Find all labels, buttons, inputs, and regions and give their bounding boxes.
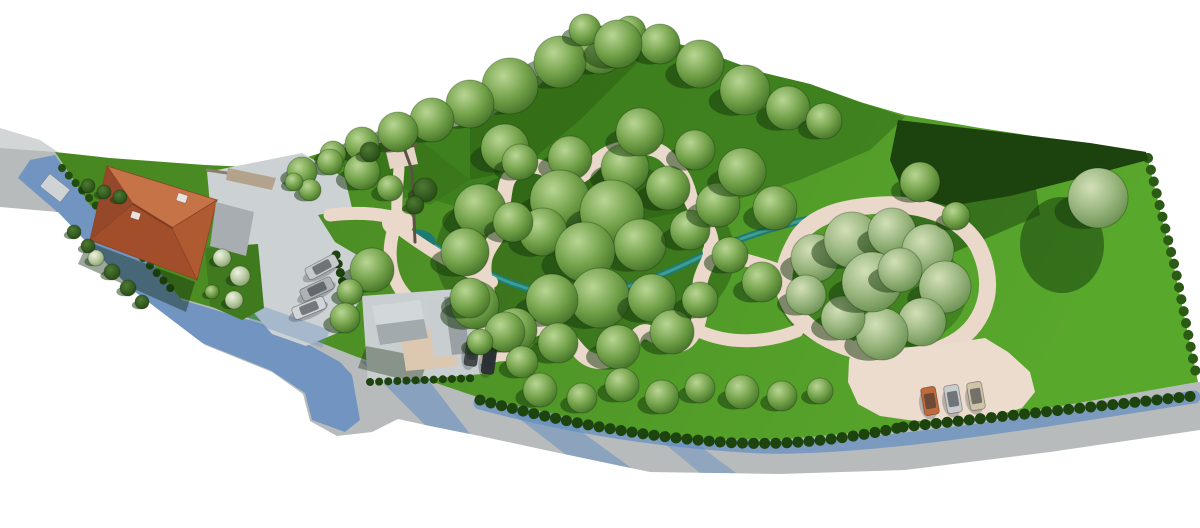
tree-crown bbox=[596, 325, 640, 369]
tree-crown bbox=[720, 65, 770, 115]
site-plan-svg bbox=[0, 0, 1200, 528]
tree-crown bbox=[567, 383, 597, 413]
tree-crown bbox=[317, 149, 343, 175]
site-plan-render bbox=[0, 0, 1200, 528]
tree-crown bbox=[378, 112, 418, 152]
tree-crown bbox=[523, 373, 557, 407]
tree-crown bbox=[406, 196, 424, 214]
tree-crown bbox=[120, 280, 136, 296]
tree-crown bbox=[97, 185, 111, 199]
tree-crown bbox=[230, 266, 250, 286]
tree-crown bbox=[725, 375, 759, 409]
tree bbox=[132, 295, 149, 309]
tree-crown bbox=[685, 373, 715, 403]
tree-crown bbox=[360, 142, 380, 162]
tree-crown bbox=[81, 179, 95, 193]
tree-crown bbox=[807, 378, 833, 404]
tree-crown bbox=[502, 144, 538, 180]
tree-crown bbox=[675, 130, 715, 170]
tree-crown bbox=[1068, 168, 1128, 228]
tree-crown bbox=[676, 40, 724, 88]
tree-crown bbox=[330, 303, 360, 333]
tree-crown bbox=[493, 202, 533, 242]
tree-crown bbox=[605, 368, 639, 402]
tree-crown bbox=[225, 291, 243, 309]
tree-crown bbox=[570, 268, 630, 328]
tree bbox=[78, 239, 95, 253]
tree-crown bbox=[594, 20, 642, 68]
tree-crown bbox=[786, 275, 826, 315]
tree-crown bbox=[467, 329, 493, 355]
tree-crown bbox=[767, 381, 797, 411]
tree-crown bbox=[205, 285, 219, 299]
tree-crown bbox=[377, 175, 403, 201]
tree-crown bbox=[942, 202, 970, 230]
tree-crown bbox=[712, 237, 748, 273]
tree-crown bbox=[682, 282, 718, 318]
tree-crown bbox=[753, 186, 797, 230]
tree-crown bbox=[81, 239, 95, 253]
tree-crown bbox=[67, 225, 81, 239]
tree-crown bbox=[900, 162, 940, 202]
hedge-garage-south bbox=[370, 378, 478, 382]
tree-crown bbox=[640, 24, 680, 64]
tree-crown bbox=[806, 103, 842, 139]
tree-crown bbox=[718, 148, 766, 196]
tree-crown bbox=[645, 380, 679, 414]
scene-root bbox=[0, 14, 1200, 474]
tree-crown bbox=[506, 346, 538, 378]
tree-crown bbox=[337, 279, 363, 305]
tree-crown bbox=[614, 219, 666, 271]
tree-crown bbox=[616, 108, 664, 156]
tree-crown bbox=[742, 262, 782, 302]
tree-crown bbox=[113, 190, 127, 204]
tree-crown bbox=[538, 323, 578, 363]
tree-crown bbox=[213, 249, 231, 267]
tree-crown bbox=[646, 166, 690, 210]
tree bbox=[64, 225, 81, 239]
tree-crown bbox=[104, 264, 120, 280]
tree-crown bbox=[441, 228, 489, 276]
tree-crown bbox=[135, 295, 149, 309]
tree-crown bbox=[285, 173, 303, 191]
tree-crown bbox=[450, 278, 490, 318]
tree-crown bbox=[878, 248, 922, 292]
tree bbox=[116, 280, 136, 296]
